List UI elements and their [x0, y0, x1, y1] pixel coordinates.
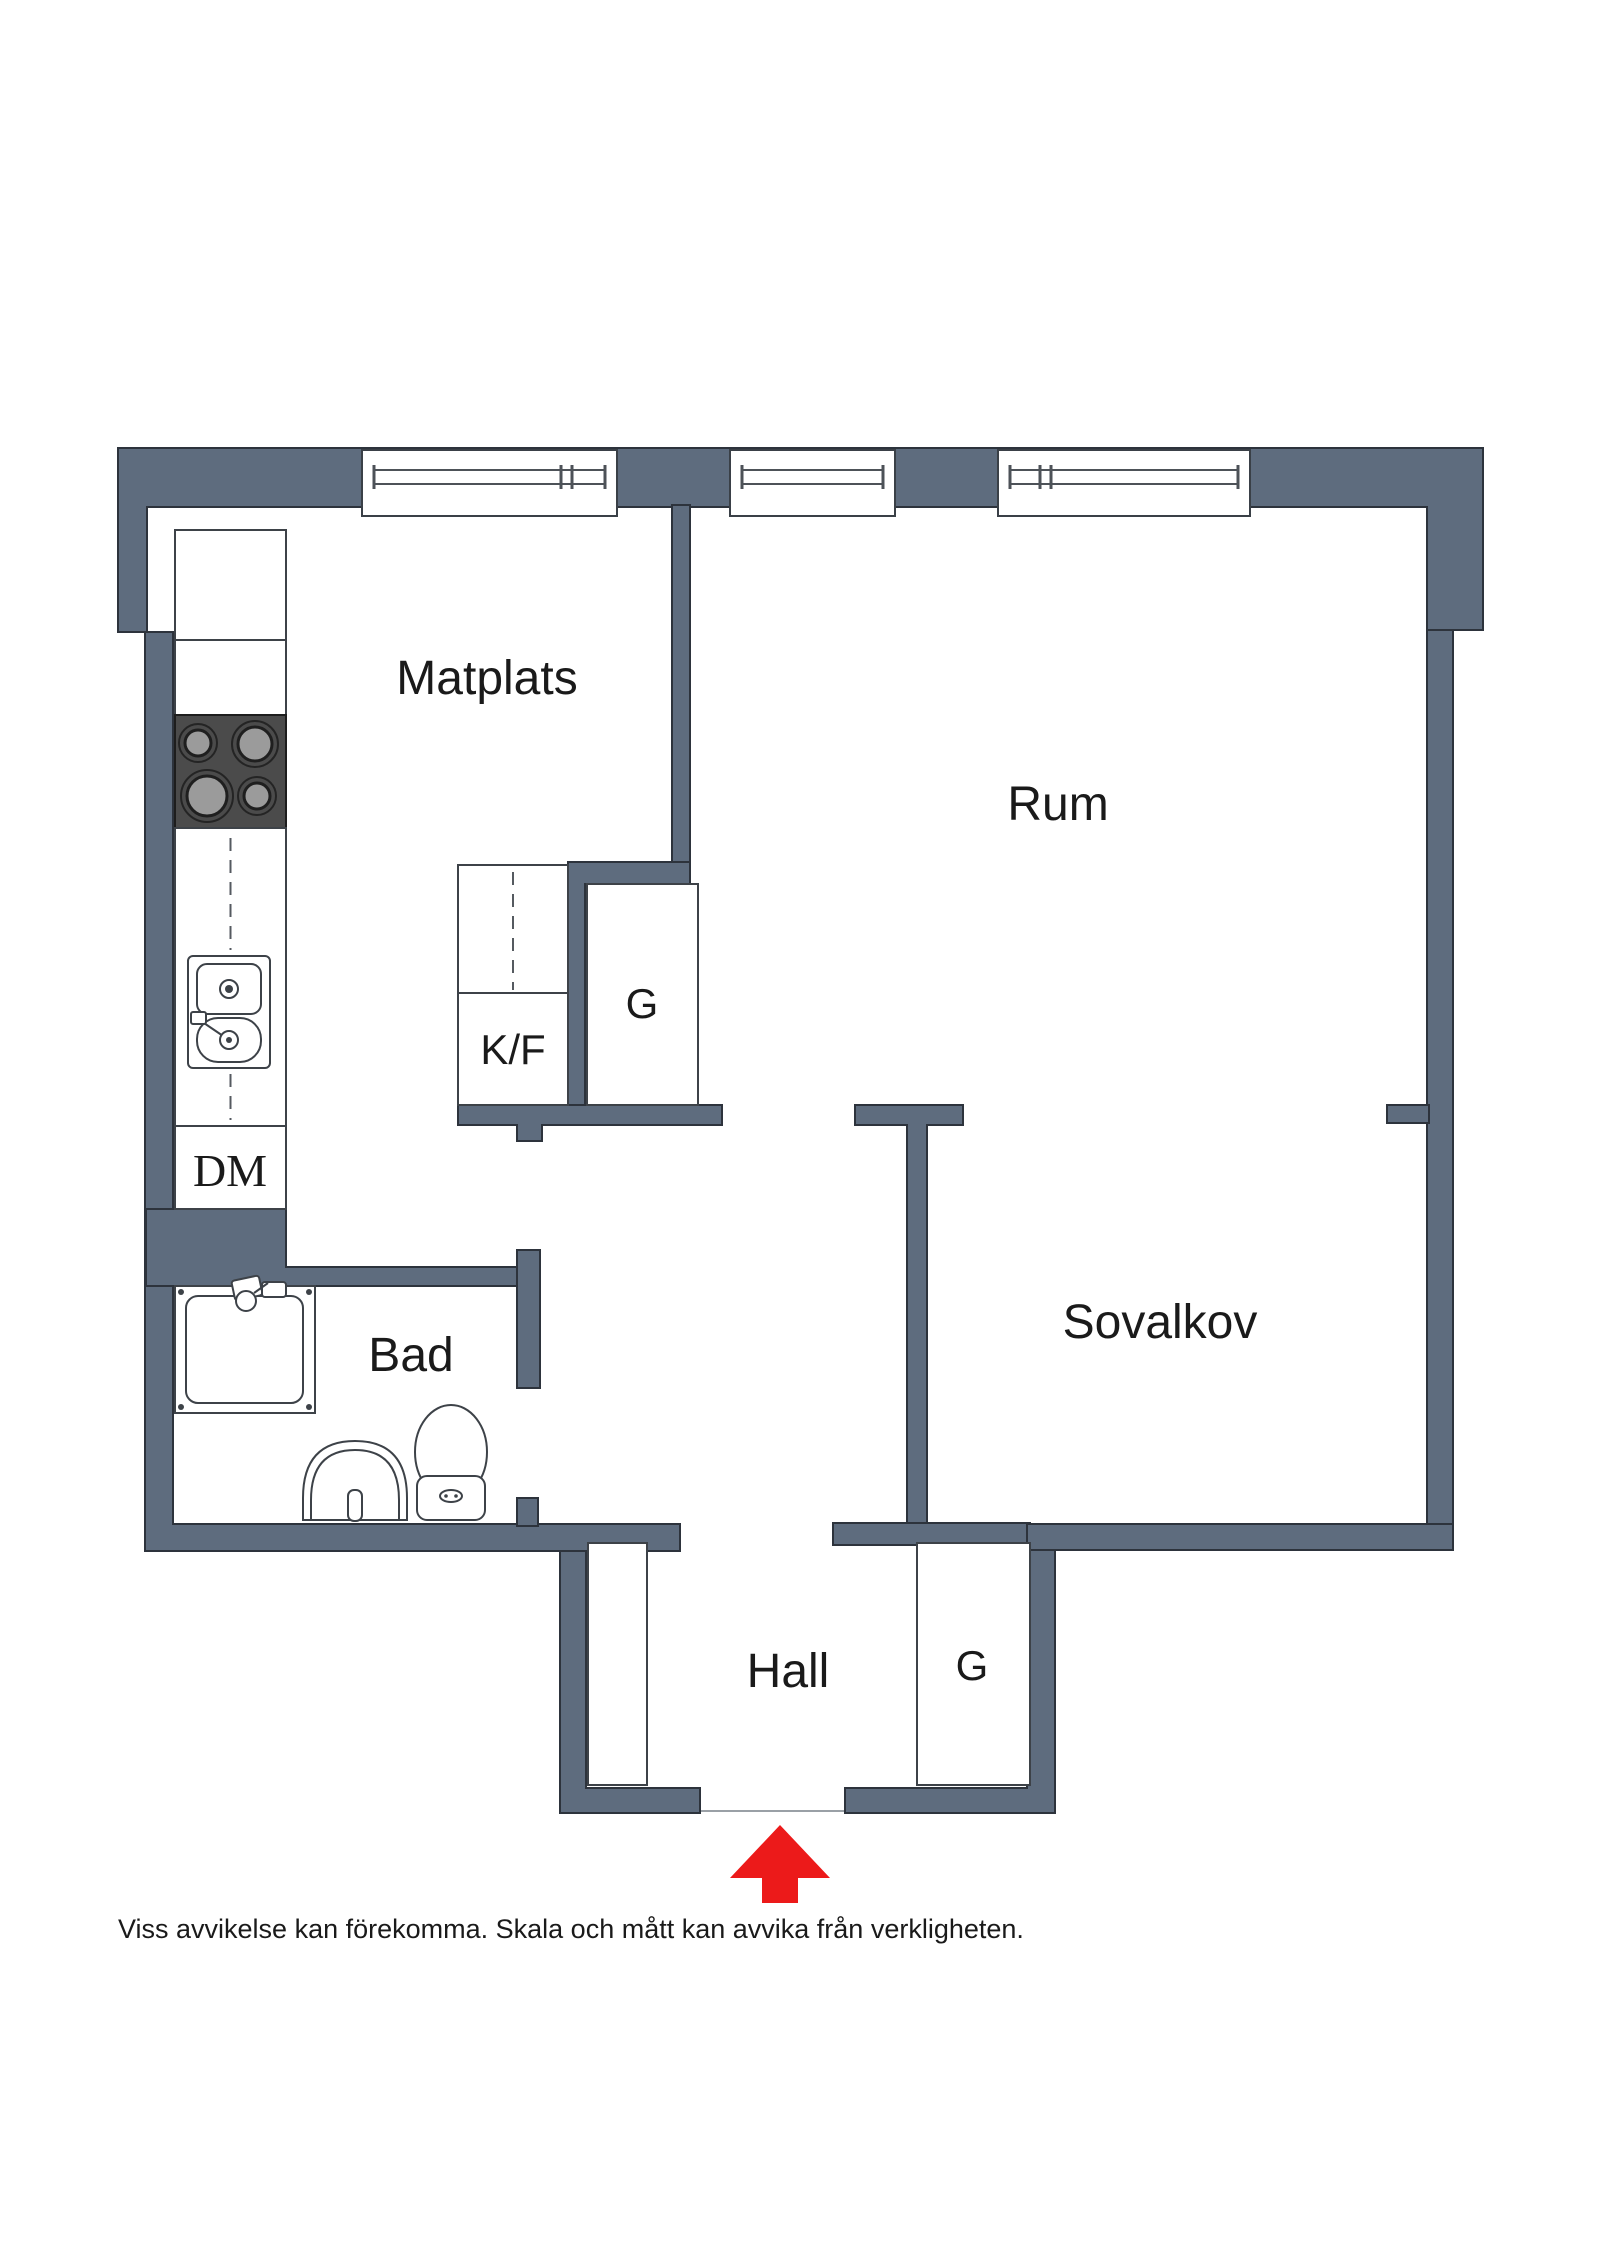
label-g-left: G	[626, 980, 659, 1027]
wall-kfg-bottom	[458, 1105, 722, 1141]
entrance-arrow-icon	[730, 1825, 830, 1903]
label-bad: Bad	[368, 1329, 453, 1382]
washbasin-icon	[303, 1441, 407, 1521]
label-rum: Rum	[1007, 778, 1108, 831]
label-dm: DM	[193, 1145, 267, 1196]
wall-kitchen-block	[146, 1209, 540, 1286]
wall-matplats-rum-divider	[672, 505, 690, 870]
wall-sovalkov-divider	[855, 1105, 963, 1523]
wall-g-top	[833, 1523, 1030, 1545]
hall-closet-box	[588, 1543, 647, 1785]
label-matplats: Matplats	[396, 652, 577, 705]
window-icon	[730, 450, 895, 516]
closets	[458, 865, 1030, 1785]
wall-sovalkov-stub	[1387, 1105, 1429, 1123]
wall-bottom-right	[1027, 1524, 1453, 1550]
label-sovalkov: Sovalkov	[1063, 1296, 1258, 1349]
floorplan-page: Matplats Rum Sovalkov Bad Hall K/F G G D…	[0, 0, 1600, 2262]
kitchen-fixtures	[175, 530, 286, 1209]
windows	[362, 450, 1250, 516]
label-g-right: G	[956, 1642, 989, 1689]
wall-bad-door-stub	[517, 1498, 538, 1526]
bathroom-fixtures	[175, 1275, 487, 1521]
wall-bad-right	[517, 1250, 540, 1388]
toilet-icon	[415, 1405, 487, 1520]
disclaimer-text: Viss avvikelse kan förekomma. Skala och …	[118, 1914, 1024, 1944]
shower-icon	[175, 1275, 315, 1413]
label-hall: Hall	[747, 1645, 830, 1698]
wall-right	[1427, 630, 1453, 1550]
window-icon	[362, 450, 617, 516]
kitchen-cabinet	[175, 530, 286, 715]
window-icon	[998, 450, 1250, 516]
stove-icon	[175, 715, 286, 828]
walls	[118, 448, 1483, 1813]
floorplan-drawing: Matplats Rum Sovalkov Bad Hall K/F G G D…	[0, 0, 1600, 2262]
label-kf: K/F	[480, 1026, 545, 1073]
sink-icon	[188, 956, 270, 1068]
